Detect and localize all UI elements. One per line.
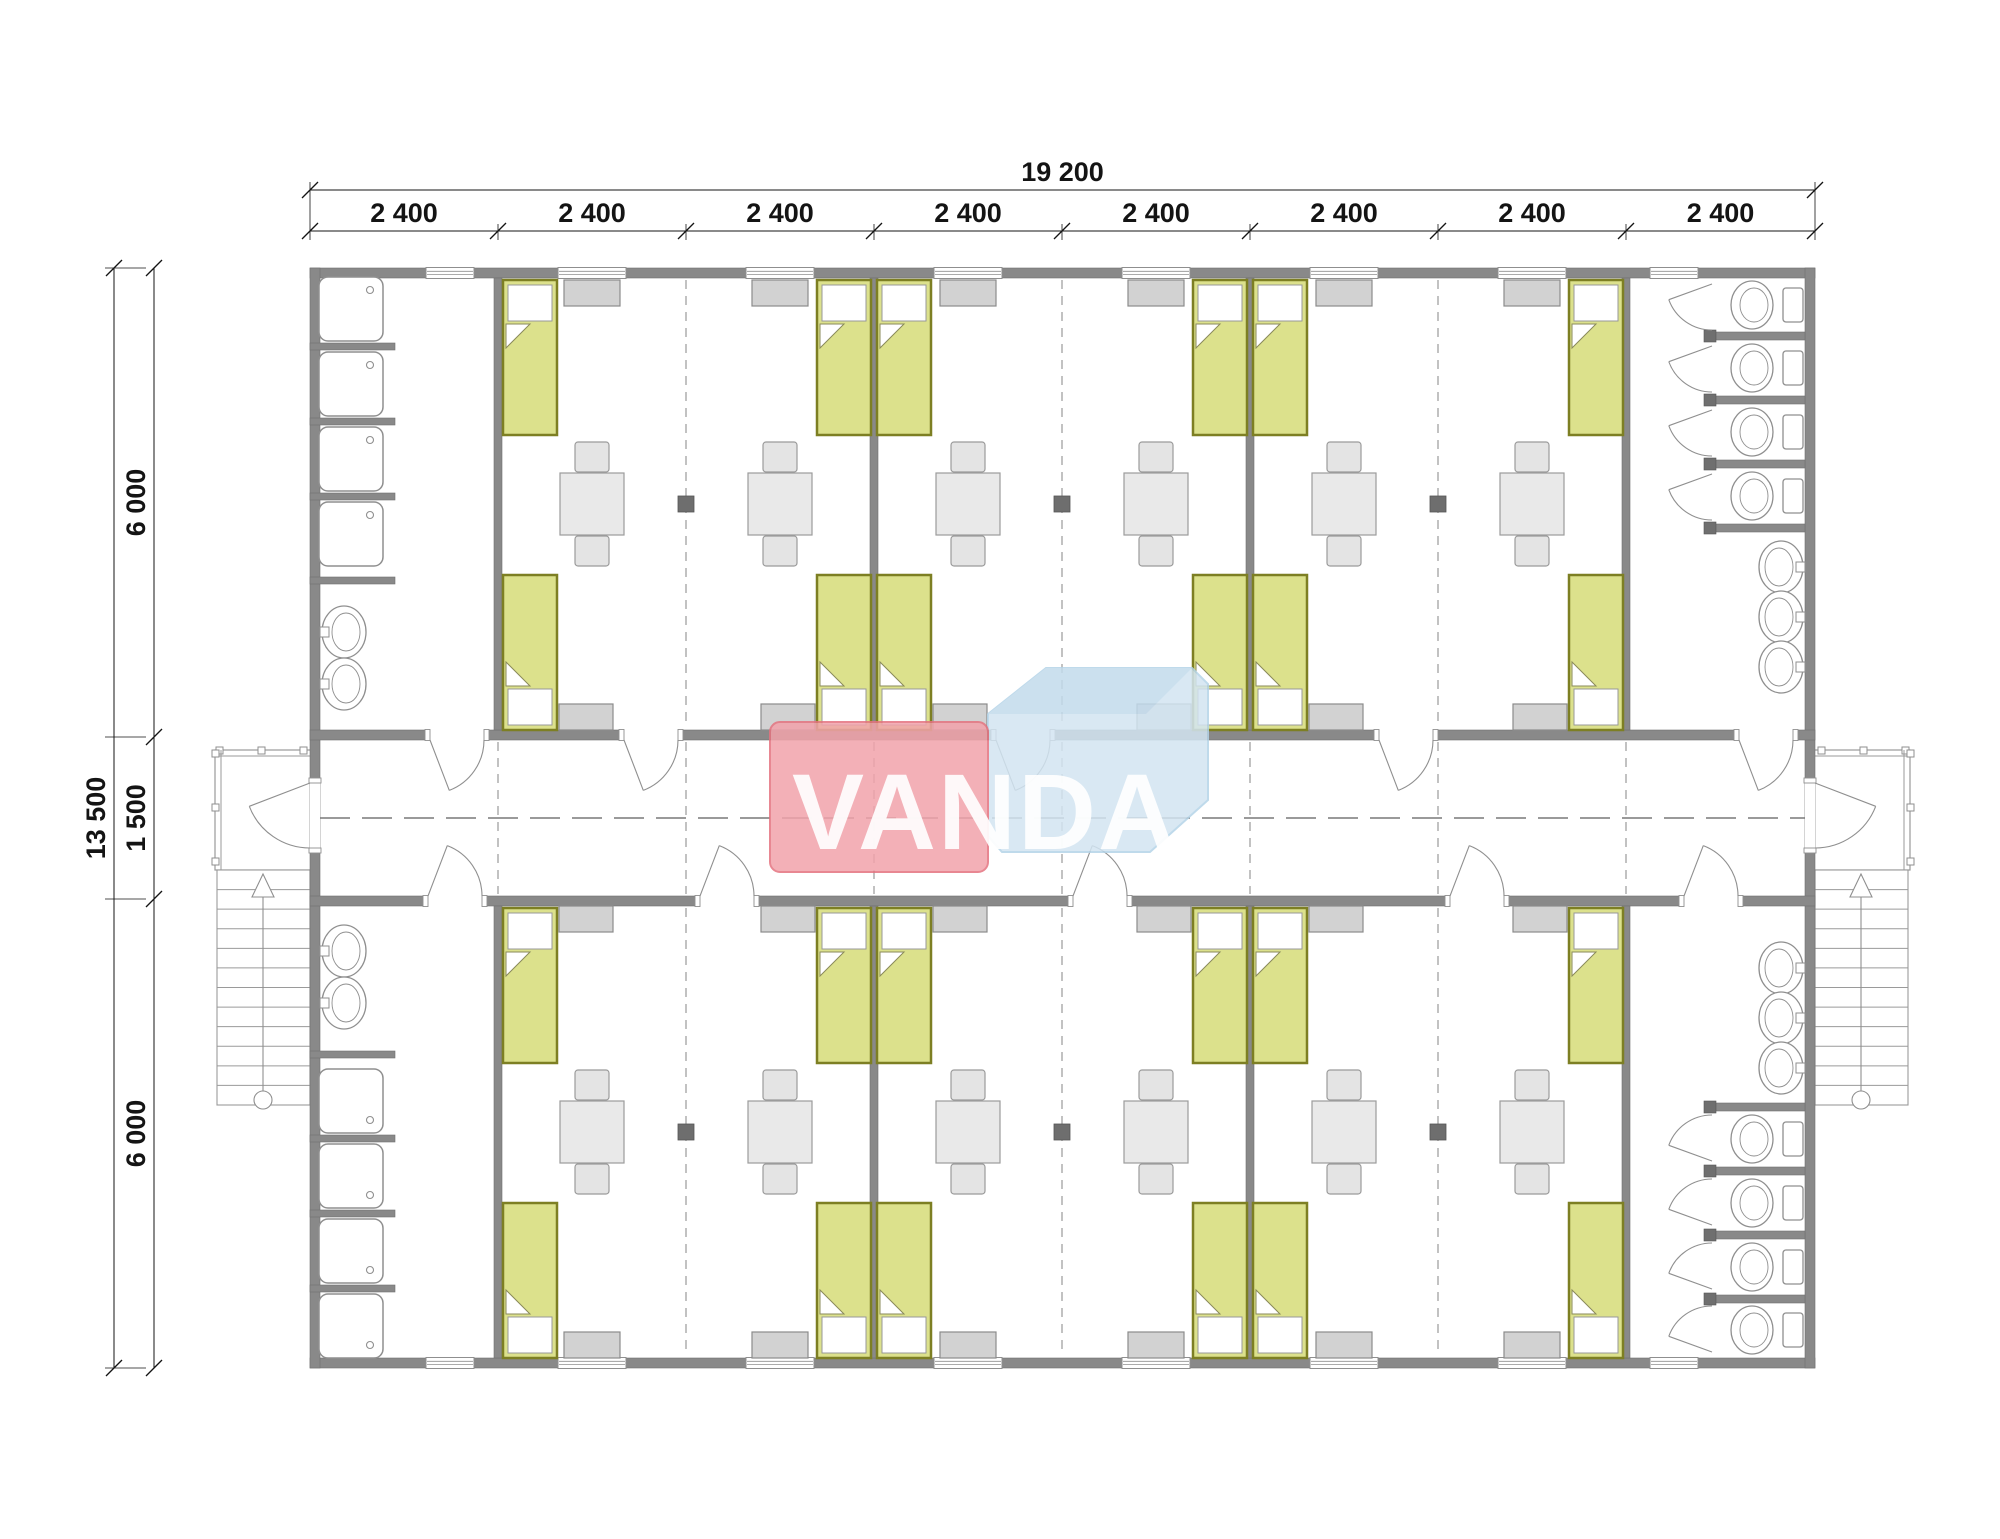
bed: [1569, 908, 1623, 1063]
bed-pillow: [822, 689, 866, 725]
table: [1124, 1101, 1188, 1163]
chair: [1515, 442, 1549, 472]
dim-label-segment: 2 400: [1498, 198, 1566, 228]
window: [746, 1358, 814, 1369]
bed-pillow: [508, 689, 552, 725]
chair: [1327, 1070, 1361, 1100]
door-jamb: [309, 778, 321, 783]
railing-post: [1818, 747, 1825, 754]
window: [1650, 1358, 1698, 1369]
chair: [763, 1164, 797, 1194]
wc-partition-jamb: [1704, 394, 1716, 406]
door-jamb: [1679, 896, 1684, 907]
dim-label-total-width: 19 200: [1021, 157, 1104, 187]
table: [748, 1101, 812, 1163]
table: [560, 473, 624, 535]
wardrobe: [752, 1332, 808, 1358]
railing-post: [258, 747, 265, 754]
bed: [503, 280, 557, 435]
window: [1122, 268, 1190, 279]
chair: [1139, 536, 1173, 566]
bed: [1193, 280, 1247, 435]
wc-partition: [1712, 1231, 1805, 1239]
wardrobe: [1504, 280, 1560, 306]
bed: [817, 280, 871, 435]
chair: [951, 442, 985, 472]
bed-pillow: [1574, 1317, 1618, 1353]
wall-north: [310, 268, 1815, 278]
bed-pillow: [1574, 913, 1618, 949]
railing-post: [1907, 804, 1914, 811]
window: [426, 1358, 474, 1369]
bed: [1193, 1203, 1247, 1358]
bed-pillow: [822, 913, 866, 949]
dim-label-segment: 2 400: [934, 198, 1002, 228]
door-jamb: [1127, 896, 1132, 907]
railing-post: [1907, 858, 1914, 865]
bed-pillow: [1258, 285, 1302, 321]
door-jamb: [484, 730, 489, 741]
chair: [1327, 442, 1361, 472]
wardrobe: [933, 906, 987, 932]
dim-label-segment: 2 400: [746, 198, 814, 228]
window: [1498, 1358, 1566, 1369]
window: [1498, 268, 1566, 279]
dim-label-total-height: 13 500: [81, 777, 111, 860]
bed: [817, 908, 871, 1063]
shower-partition: [310, 1135, 395, 1142]
door-jamb: [619, 730, 624, 741]
chair: [951, 1164, 985, 1194]
wardrobe: [752, 280, 808, 306]
wc-partition: [1712, 524, 1805, 532]
chair: [1139, 1164, 1173, 1194]
shower-drain: [367, 1192, 374, 1199]
column: [1054, 1124, 1070, 1140]
wardrobe: [564, 1332, 620, 1358]
wc-partition-jamb: [1704, 1165, 1716, 1177]
door-swing: [1804, 848, 1816, 853]
door-jamb: [1804, 778, 1816, 783]
bed-pillow: [1198, 913, 1242, 949]
shower-tray: [319, 352, 383, 416]
railing-post: [1860, 747, 1867, 754]
bed: [503, 908, 557, 1063]
bed-pillow: [1258, 689, 1302, 725]
left-stairs: [217, 870, 310, 1109]
window: [1310, 268, 1378, 279]
door-jamb: [482, 896, 487, 907]
wardrobe: [559, 906, 613, 932]
chair: [1515, 1164, 1549, 1194]
window: [558, 268, 626, 279]
bed-pillow: [508, 285, 552, 321]
bed-pillow: [1258, 913, 1302, 949]
toilet: [1731, 1306, 1803, 1354]
wc-partition-jamb: [1704, 1293, 1716, 1305]
wardrobe: [1309, 704, 1363, 730]
bed-pillow: [882, 913, 926, 949]
wc-partition-jamb: [1704, 1229, 1716, 1241]
window: [426, 268, 474, 279]
bed: [817, 1203, 871, 1358]
window: [934, 1358, 1002, 1369]
wc-partition-jamb: [1704, 330, 1716, 342]
bed-pillow: [882, 1317, 926, 1353]
table: [1500, 473, 1564, 535]
wardrobe: [761, 906, 815, 932]
toilet: [1731, 1179, 1803, 1227]
wardrobe: [1316, 280, 1372, 306]
door-jamb: [754, 896, 759, 907]
bed: [503, 1203, 557, 1358]
toilet: [1731, 1115, 1803, 1163]
floor-plan-page: 19 2002 4002 4002 4002 4002 4002 4002 40…: [0, 0, 2000, 1539]
dim-label-segment: 6 000: [121, 1100, 151, 1168]
table: [1124, 473, 1188, 535]
bed-pillow: [822, 1317, 866, 1353]
shower-partition: [310, 343, 395, 350]
bed-pillow: [1198, 285, 1242, 321]
chair: [1327, 1164, 1361, 1194]
door-jamb: [1734, 730, 1739, 741]
column: [678, 1124, 694, 1140]
dim-label-segment: 6 000: [121, 469, 151, 537]
wc-partition: [1712, 1103, 1805, 1111]
shower-tray: [319, 502, 383, 566]
bed-pillow: [1574, 285, 1618, 321]
wardrobe: [1316, 1332, 1372, 1358]
floor-plan-drawing: 19 2002 4002 4002 4002 4002 4002 4002 40…: [0, 0, 2000, 1539]
chair: [1515, 536, 1549, 566]
dim-label-segment: 2 400: [1122, 198, 1190, 228]
toilet: [1731, 1243, 1803, 1291]
bed: [1253, 908, 1307, 1063]
wc-partition-jamb: [1704, 1101, 1716, 1113]
wardrobe: [940, 280, 996, 306]
dim-label-segment: 2 400: [370, 198, 438, 228]
railing-post: [212, 804, 219, 811]
table: [936, 1101, 1000, 1163]
dim-label-segment: 2 400: [1310, 198, 1378, 228]
door-jamb: [1504, 896, 1509, 907]
chair: [1327, 536, 1361, 566]
table: [1500, 1101, 1564, 1163]
divider-wall: [494, 278, 502, 730]
wardrobe: [1128, 1332, 1184, 1358]
bed-pillow: [882, 285, 926, 321]
chair: [763, 536, 797, 566]
bed: [1253, 1203, 1307, 1358]
chair: [575, 442, 609, 472]
wc-partition: [1712, 1295, 1805, 1303]
chair: [575, 536, 609, 566]
door-jamb: [1068, 896, 1073, 907]
shower-drain: [367, 1117, 374, 1124]
chair: [1515, 1070, 1549, 1100]
shower-partition: [310, 493, 395, 500]
column: [1430, 1124, 1446, 1140]
stair-start-circle: [254, 1091, 272, 1109]
table: [936, 473, 1000, 535]
table: [1312, 1101, 1376, 1163]
bed: [1569, 280, 1623, 435]
wardrobe: [1513, 906, 1567, 932]
shower-drain: [367, 512, 374, 519]
window: [1122, 1358, 1190, 1369]
bed: [877, 1203, 931, 1358]
wardrobe: [1128, 280, 1184, 306]
watermark-text: VANDA: [792, 751, 1178, 872]
railing-post: [1907, 750, 1914, 757]
stair-start-circle: [1852, 1091, 1870, 1109]
shower-tray: [319, 277, 383, 341]
table: [1312, 473, 1376, 535]
table: [748, 473, 812, 535]
bed: [1569, 575, 1623, 730]
door-jamb: [695, 896, 700, 907]
door-jamb: [1445, 896, 1450, 907]
bed-pillow: [822, 285, 866, 321]
wc-partition-jamb: [1704, 522, 1716, 534]
bed: [877, 280, 931, 435]
shower-drain: [367, 287, 374, 294]
dim-label-segment: 1 500: [121, 784, 151, 852]
chair: [1139, 1070, 1173, 1100]
railing-post: [212, 750, 219, 757]
wall-south: [310, 1358, 1815, 1368]
shower-partition: [310, 1285, 395, 1292]
bed-pillow: [508, 913, 552, 949]
bed: [817, 575, 871, 730]
shower-tray: [319, 1144, 383, 1208]
door-jamb: [678, 730, 683, 741]
wc-partition: [1712, 396, 1805, 404]
door-jamb: [1374, 730, 1379, 741]
wardrobe: [1309, 906, 1363, 932]
wardrobe: [1504, 1332, 1560, 1358]
wardrobe: [1513, 704, 1567, 730]
wardrobe: [1137, 906, 1191, 932]
shower-drain: [367, 437, 374, 444]
bed: [503, 575, 557, 730]
wc-partition-jamb: [1704, 458, 1716, 470]
bed: [1253, 280, 1307, 435]
bed: [1253, 575, 1307, 730]
toilet: [1731, 344, 1803, 392]
chair: [763, 442, 797, 472]
chair: [951, 1070, 985, 1100]
shower-partition: [310, 1210, 395, 1217]
window: [558, 1358, 626, 1369]
shower-partition: [310, 577, 395, 584]
door-jamb: [1433, 730, 1438, 741]
shower-tray: [319, 1219, 383, 1283]
chair: [575, 1164, 609, 1194]
shower-tray: [319, 1069, 383, 1133]
shower-tray: [319, 1294, 383, 1358]
door-jamb: [423, 896, 428, 907]
divider-wall: [494, 906, 502, 1358]
wc-partition: [1712, 1167, 1805, 1175]
bed: [877, 575, 931, 730]
bed-pillow: [1258, 1317, 1302, 1353]
shower-drain: [367, 1267, 374, 1274]
window: [1650, 268, 1698, 279]
door-jamb: [309, 848, 321, 853]
chair: [575, 1070, 609, 1100]
chair: [763, 1070, 797, 1100]
dim-label-segment: 2 400: [558, 198, 626, 228]
window: [1310, 1358, 1378, 1369]
chair: [1139, 442, 1173, 472]
wardrobe: [564, 280, 620, 306]
railing-post: [300, 747, 307, 754]
wardrobe: [559, 704, 613, 730]
right-stairs: [1815, 870, 1908, 1109]
door-jamb: [1738, 896, 1743, 907]
railing-post: [212, 858, 219, 865]
column: [1054, 496, 1070, 512]
toilet: [1731, 472, 1803, 520]
shower-drain: [367, 1342, 374, 1349]
shower-partition: [310, 1051, 395, 1058]
column: [1430, 496, 1446, 512]
bed: [877, 908, 931, 1063]
bed: [1569, 1203, 1623, 1358]
table: [560, 1101, 624, 1163]
shower-tray: [319, 427, 383, 491]
bed-pillow: [882, 689, 926, 725]
shower-drain: [367, 362, 374, 369]
toilet: [1731, 281, 1803, 329]
shower-partition: [310, 418, 395, 425]
window: [934, 268, 1002, 279]
bed-pillow: [1198, 1317, 1242, 1353]
bed-pillow: [1574, 689, 1618, 725]
dim-label-segment: 2 400: [1687, 198, 1755, 228]
bed: [1193, 908, 1247, 1063]
column: [678, 496, 694, 512]
door-jamb: [1793, 730, 1798, 741]
wc-partition: [1712, 332, 1805, 340]
bed-pillow: [508, 1317, 552, 1353]
chair: [951, 536, 985, 566]
toilet: [1731, 408, 1803, 456]
wc-partition: [1712, 460, 1805, 468]
window: [746, 268, 814, 279]
door-jamb: [425, 730, 430, 741]
wardrobe: [940, 1332, 996, 1358]
